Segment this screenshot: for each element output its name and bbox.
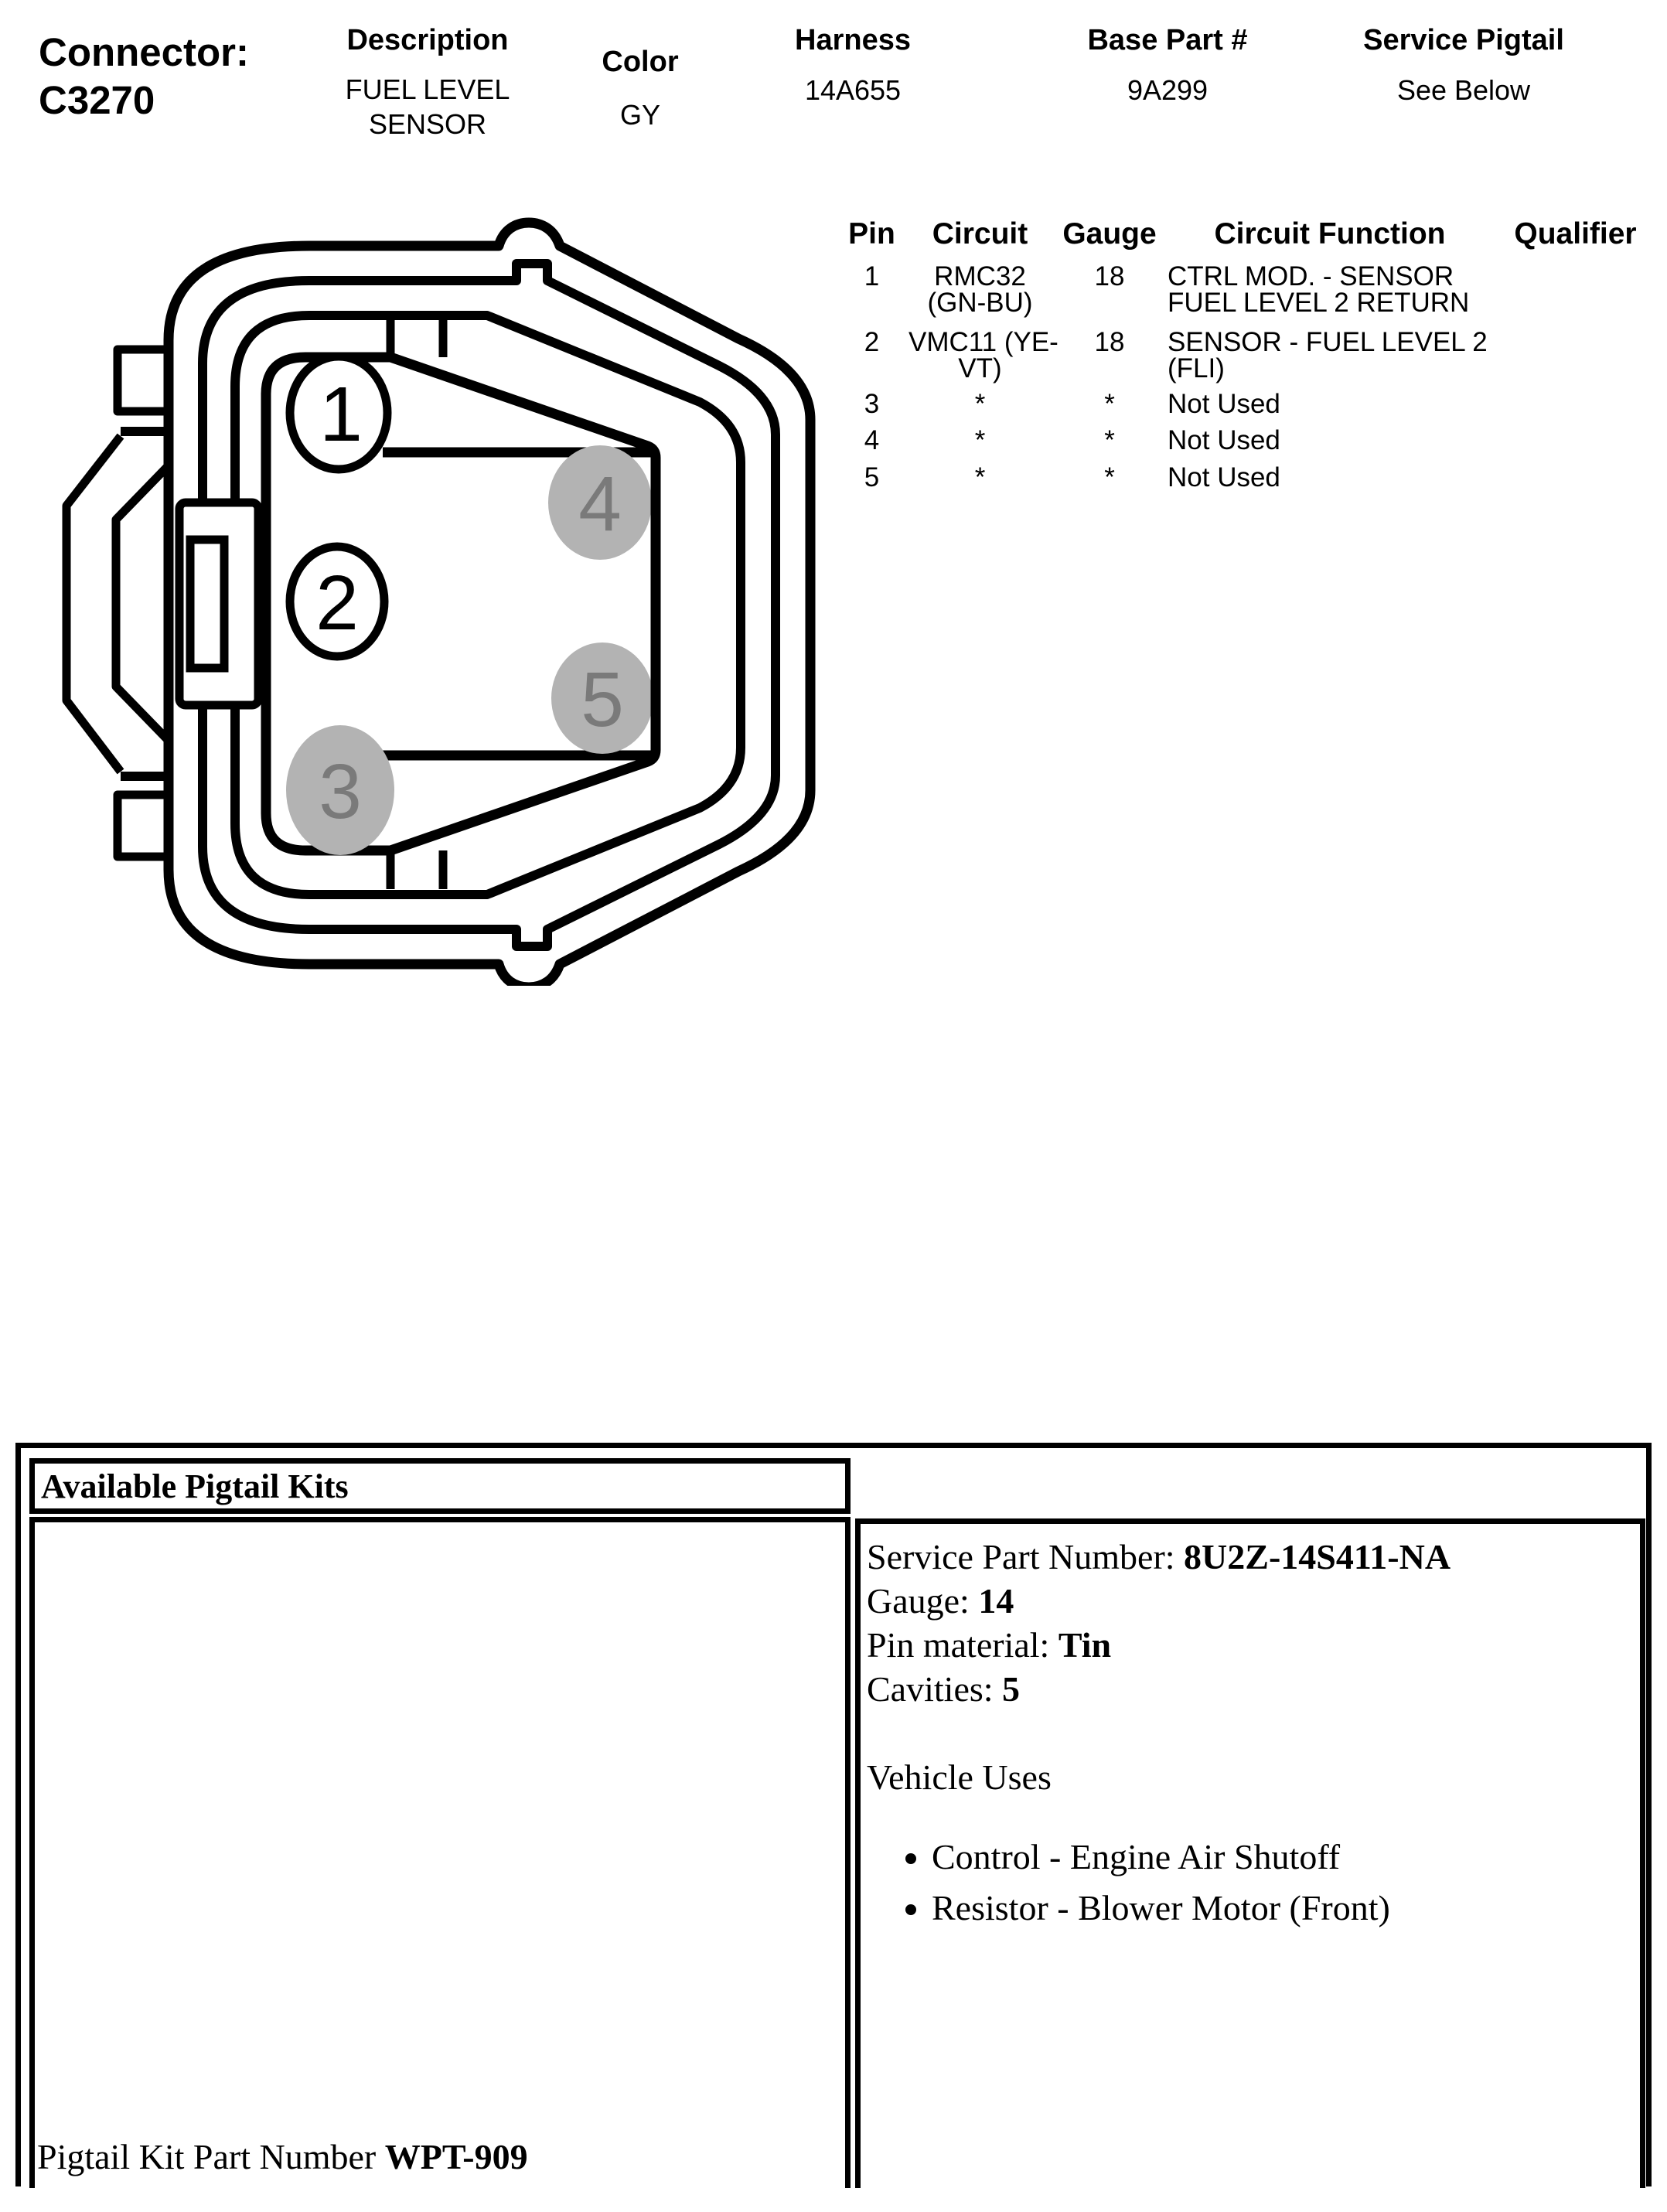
vehicle-use-item: Resistor - Blower Motor (Front) bbox=[932, 1886, 1632, 1930]
circuit-cell: * bbox=[908, 391, 1052, 418]
circuit-line2: (GN-BU) bbox=[908, 290, 1052, 316]
qualifier-cell bbox=[1492, 264, 1658, 316]
color-label: Color bbox=[571, 45, 710, 79]
cavities-value: 5 bbox=[1002, 1669, 1020, 1709]
qualifier-column-header: Qualifier bbox=[1492, 219, 1658, 250]
function-cell: CTRL MOD. - SENSOR FUEL LEVEL 2 RETURN bbox=[1168, 264, 1492, 316]
pin-table-header-row: Pin Circuit Gauge Circuit Function Quali… bbox=[835, 219, 1662, 250]
qualifier-cell bbox=[1492, 391, 1658, 418]
header-column-service-pigtail: Service Pigtail See Below bbox=[1355, 0, 1572, 107]
qualifier-cell bbox=[1492, 465, 1658, 491]
service-part-detail-cell: Service Part Number: 8U2Z-14S411-NA Gaug… bbox=[855, 1518, 1645, 2188]
function-line1: SENSOR - FUEL LEVEL 2 bbox=[1168, 329, 1492, 356]
pin-table-row-5: 5 * * Not Used bbox=[835, 465, 1662, 491]
cavities-label: Cavities: bbox=[867, 1669, 994, 1709]
function-cell: SENSOR - FUEL LEVEL 2 (FLI) bbox=[1168, 329, 1492, 382]
vehicle-use-item: Control - Engine Air Shutoff bbox=[932, 1835, 1632, 1879]
gauge-cell: * bbox=[1052, 465, 1168, 491]
pin-table-row-2: 2 VMC11 (YE- VT) 18 SENSOR - FUEL LEVEL … bbox=[835, 329, 1662, 382]
function-cell: Not Used bbox=[1168, 391, 1492, 418]
pin-column-header: Pin bbox=[835, 219, 908, 250]
pigtail-kit-part-number-value: WPT-909 bbox=[385, 2137, 528, 2176]
circuit-line1: RMC32 bbox=[908, 264, 1052, 290]
service-pigtail-value: See Below bbox=[1355, 73, 1572, 107]
pin-3-label: 3 bbox=[319, 748, 362, 835]
function-cell: Not Used bbox=[1168, 428, 1492, 454]
pin-1-label: 1 bbox=[319, 371, 363, 458]
connector-id: C3270 bbox=[39, 80, 155, 120]
harness-value: 14A655 bbox=[764, 73, 942, 107]
description-label: Description bbox=[323, 23, 532, 57]
harness-label: Harness bbox=[764, 23, 942, 57]
pin-5-label: 5 bbox=[581, 656, 624, 743]
connector-document-page: Connector: C3270 Description FUEL LEVEL … bbox=[0, 0, 1667, 2212]
gauge-column-header: Gauge bbox=[1052, 219, 1168, 250]
gauge-value: 14 bbox=[978, 1581, 1014, 1621]
pin-table-row-1: 1 RMC32 (GN-BU) 18 CTRL MOD. - SENSOR FU… bbox=[835, 264, 1662, 316]
pin-cell: 1 bbox=[835, 264, 908, 316]
gauge-cell: * bbox=[1052, 428, 1168, 454]
service-part-number-line: Service Part Number: 8U2Z-14S411-NA bbox=[867, 1535, 1632, 1579]
pigtail-kit-part-number-line: Pigtail Kit Part Number WPT-909 bbox=[37, 2136, 528, 2177]
pin-material-value: Tin bbox=[1058, 1625, 1111, 1665]
gauge-line: Gauge: 14 bbox=[867, 1579, 1632, 1623]
qualifier-cell bbox=[1492, 428, 1658, 454]
pigtail-kit-left-cell bbox=[29, 1517, 851, 2188]
gauge-cell: * bbox=[1052, 391, 1168, 418]
gauge-label: Gauge: bbox=[867, 1581, 970, 1621]
connector-face-diagram: 1 2 3 4 5 bbox=[23, 205, 874, 986]
circuit-column-header: Circuit bbox=[908, 219, 1052, 250]
header-column-color: Color GY bbox=[571, 0, 710, 132]
service-part-number-label: Service Part Number: bbox=[867, 1537, 1175, 1576]
pigtail-kits-title-cell: Available Pigtail Kits bbox=[29, 1458, 851, 1514]
pin-4-label: 4 bbox=[578, 461, 622, 547]
circuit-cell: * bbox=[908, 465, 1052, 491]
pin-cell: 3 bbox=[835, 391, 908, 418]
circuit-line1: VMC11 (YE- bbox=[908, 329, 1052, 356]
pin-2-label: 2 bbox=[315, 560, 359, 646]
qualifier-cell bbox=[1492, 329, 1658, 382]
pin-material-line: Pin material: Tin bbox=[867, 1623, 1632, 1667]
vehicle-uses-list: Control - Engine Air Shutoff Resistor - … bbox=[867, 1835, 1632, 1930]
service-pigtail-label: Service Pigtail bbox=[1355, 23, 1572, 57]
gauge-cell: 18 bbox=[1052, 329, 1168, 382]
description-value-line2: SENSOR bbox=[323, 107, 532, 141]
gauge-cell: 18 bbox=[1052, 264, 1168, 316]
circuit-cell: RMC32 (GN-BU) bbox=[908, 264, 1052, 316]
circuit-cell: * bbox=[908, 428, 1052, 454]
lock-octagon-inner bbox=[116, 465, 169, 741]
base-part-value: 9A299 bbox=[1063, 73, 1272, 107]
latch-slot bbox=[190, 540, 224, 668]
pigtail-kit-part-number-label: Pigtail Kit Part Number bbox=[37, 2137, 376, 2176]
pin-table-row-3: 3 * * Not Used bbox=[835, 391, 1662, 418]
color-value: GY bbox=[571, 97, 710, 132]
circuit-function-column-header: Circuit Function bbox=[1168, 219, 1492, 250]
function-line1: CTRL MOD. - SENSOR bbox=[1168, 264, 1492, 290]
header-column-harness: Harness 14A655 bbox=[764, 0, 942, 107]
pin-cell: 4 bbox=[835, 428, 908, 454]
header-column-base-part: Base Part # 9A299 bbox=[1063, 0, 1272, 107]
description-value-line1: FUEL LEVEL bbox=[323, 72, 532, 107]
circuit-cell: VMC11 (YE- VT) bbox=[908, 329, 1052, 382]
function-line2: FUEL LEVEL 2 RETURN bbox=[1168, 290, 1492, 316]
circuit-line2: VT) bbox=[908, 356, 1052, 382]
pin-table-row-4: 4 * * Not Used bbox=[835, 428, 1662, 454]
pin-cell: 5 bbox=[835, 465, 908, 491]
lock-tab-top bbox=[118, 349, 169, 411]
pigtail-kits-title: Available Pigtail Kits bbox=[41, 1467, 349, 1506]
pin-cell: 2 bbox=[835, 329, 908, 382]
service-part-number-value: 8U2Z-14S411-NA bbox=[1184, 1537, 1451, 1576]
cavities-line: Cavities: 5 bbox=[867, 1667, 1632, 1711]
pin-material-label: Pin material: bbox=[867, 1625, 1049, 1665]
cavity-tick-marks bbox=[390, 320, 443, 889]
connector-label: Connector: bbox=[39, 32, 249, 72]
header-column-description: Description FUEL LEVEL SENSOR bbox=[323, 0, 532, 141]
base-part-label: Base Part # bbox=[1063, 23, 1272, 57]
lock-tab-bottom bbox=[118, 795, 169, 857]
vehicle-uses-title: Vehicle Uses bbox=[867, 1755, 1632, 1799]
function-line2: (FLI) bbox=[1168, 356, 1492, 382]
function-cell: Not Used bbox=[1168, 465, 1492, 491]
